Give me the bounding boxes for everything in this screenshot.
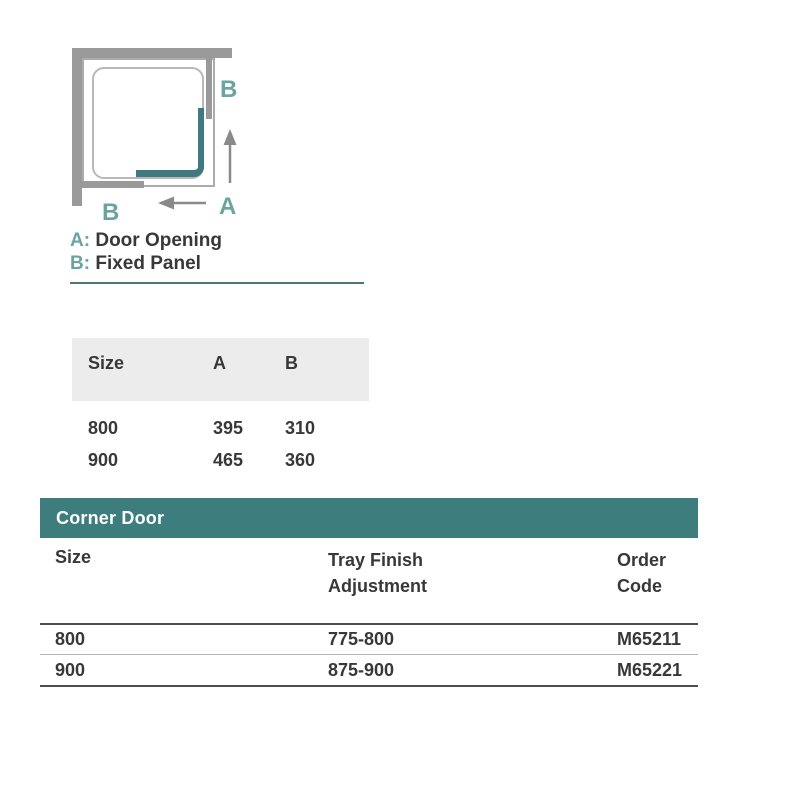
cell-size: 800 (72, 418, 213, 439)
table-row: 900 465 360 (72, 444, 369, 476)
col-header-tray-finish: Tray Finish Adjustment (328, 547, 617, 623)
legend-b-prefix: B: (70, 253, 90, 274)
col-header-order-line2: Code (617, 576, 662, 596)
diagram-label-b-top: B (220, 78, 237, 102)
cell-size: 900 (40, 660, 328, 681)
legend-line-a: A: Door Opening (70, 229, 222, 252)
table-row: 800 775-800 M65211 (40, 623, 698, 654)
diagram-legend: A: Door Opening B: Fixed Panel (70, 229, 222, 275)
cell-b: 360 (285, 450, 369, 471)
legend-a-label: Door Opening (95, 230, 222, 251)
legend-a-prefix: A: (70, 230, 90, 251)
col-header-b: B (285, 353, 369, 374)
cell-order-code: M65211 (617, 629, 698, 650)
cell-b: 310 (285, 418, 369, 439)
table-bottom-rule (40, 685, 698, 687)
fixed-panel-bottom (82, 181, 144, 188)
col-header-a: A (213, 353, 285, 374)
col-header-order-line1: Order (617, 550, 666, 570)
col-header-order-code: Order Code (617, 547, 698, 623)
table-title-banner: Corner Door (40, 498, 698, 538)
teal-divider-line (70, 282, 364, 284)
dimensions-table-header: Size A B (72, 338, 369, 401)
cell-tray-adjustment: 875-900 (328, 660, 617, 681)
corner-door-table: Corner Door Size Tray Finish Adjustment … (40, 498, 698, 687)
left-arrow-icon (158, 195, 208, 211)
diagram-label-b-bottom: B (102, 201, 119, 225)
dimensions-table: Size A B 800 395 310 900 465 360 (72, 338, 369, 476)
legend-b-label: Fixed Panel (95, 253, 201, 274)
cell-size: 800 (40, 629, 328, 650)
cell-a: 465 (213, 450, 285, 471)
col-header-size: Size (72, 353, 213, 374)
legend-line-b: B: Fixed Panel (70, 252, 222, 275)
cell-tray-adjustment: 775-800 (328, 629, 617, 650)
cell-size: 900 (72, 450, 213, 471)
corner-enclosure-diagram: B A B (70, 45, 255, 230)
col-header-tray-line1: Tray Finish (328, 550, 423, 570)
col-header-size: Size (40, 547, 328, 623)
wall-left-bar (72, 48, 82, 206)
cell-order-code: M65221 (617, 660, 698, 681)
diagram-label-a: A (219, 195, 236, 219)
fixed-panel-right (206, 57, 212, 119)
table-row: 800 395 310 (72, 412, 369, 444)
up-arrow-icon (220, 129, 240, 185)
corner-door-table-header: Size Tray Finish Adjustment Order Code (40, 538, 698, 623)
col-header-tray-line2: Adjustment (328, 576, 427, 596)
cell-a: 395 (213, 418, 285, 439)
sliding-door-panel (136, 108, 204, 177)
table-title: Corner Door (56, 508, 164, 529)
table-row: 900 875-900 M65221 (40, 654, 698, 685)
